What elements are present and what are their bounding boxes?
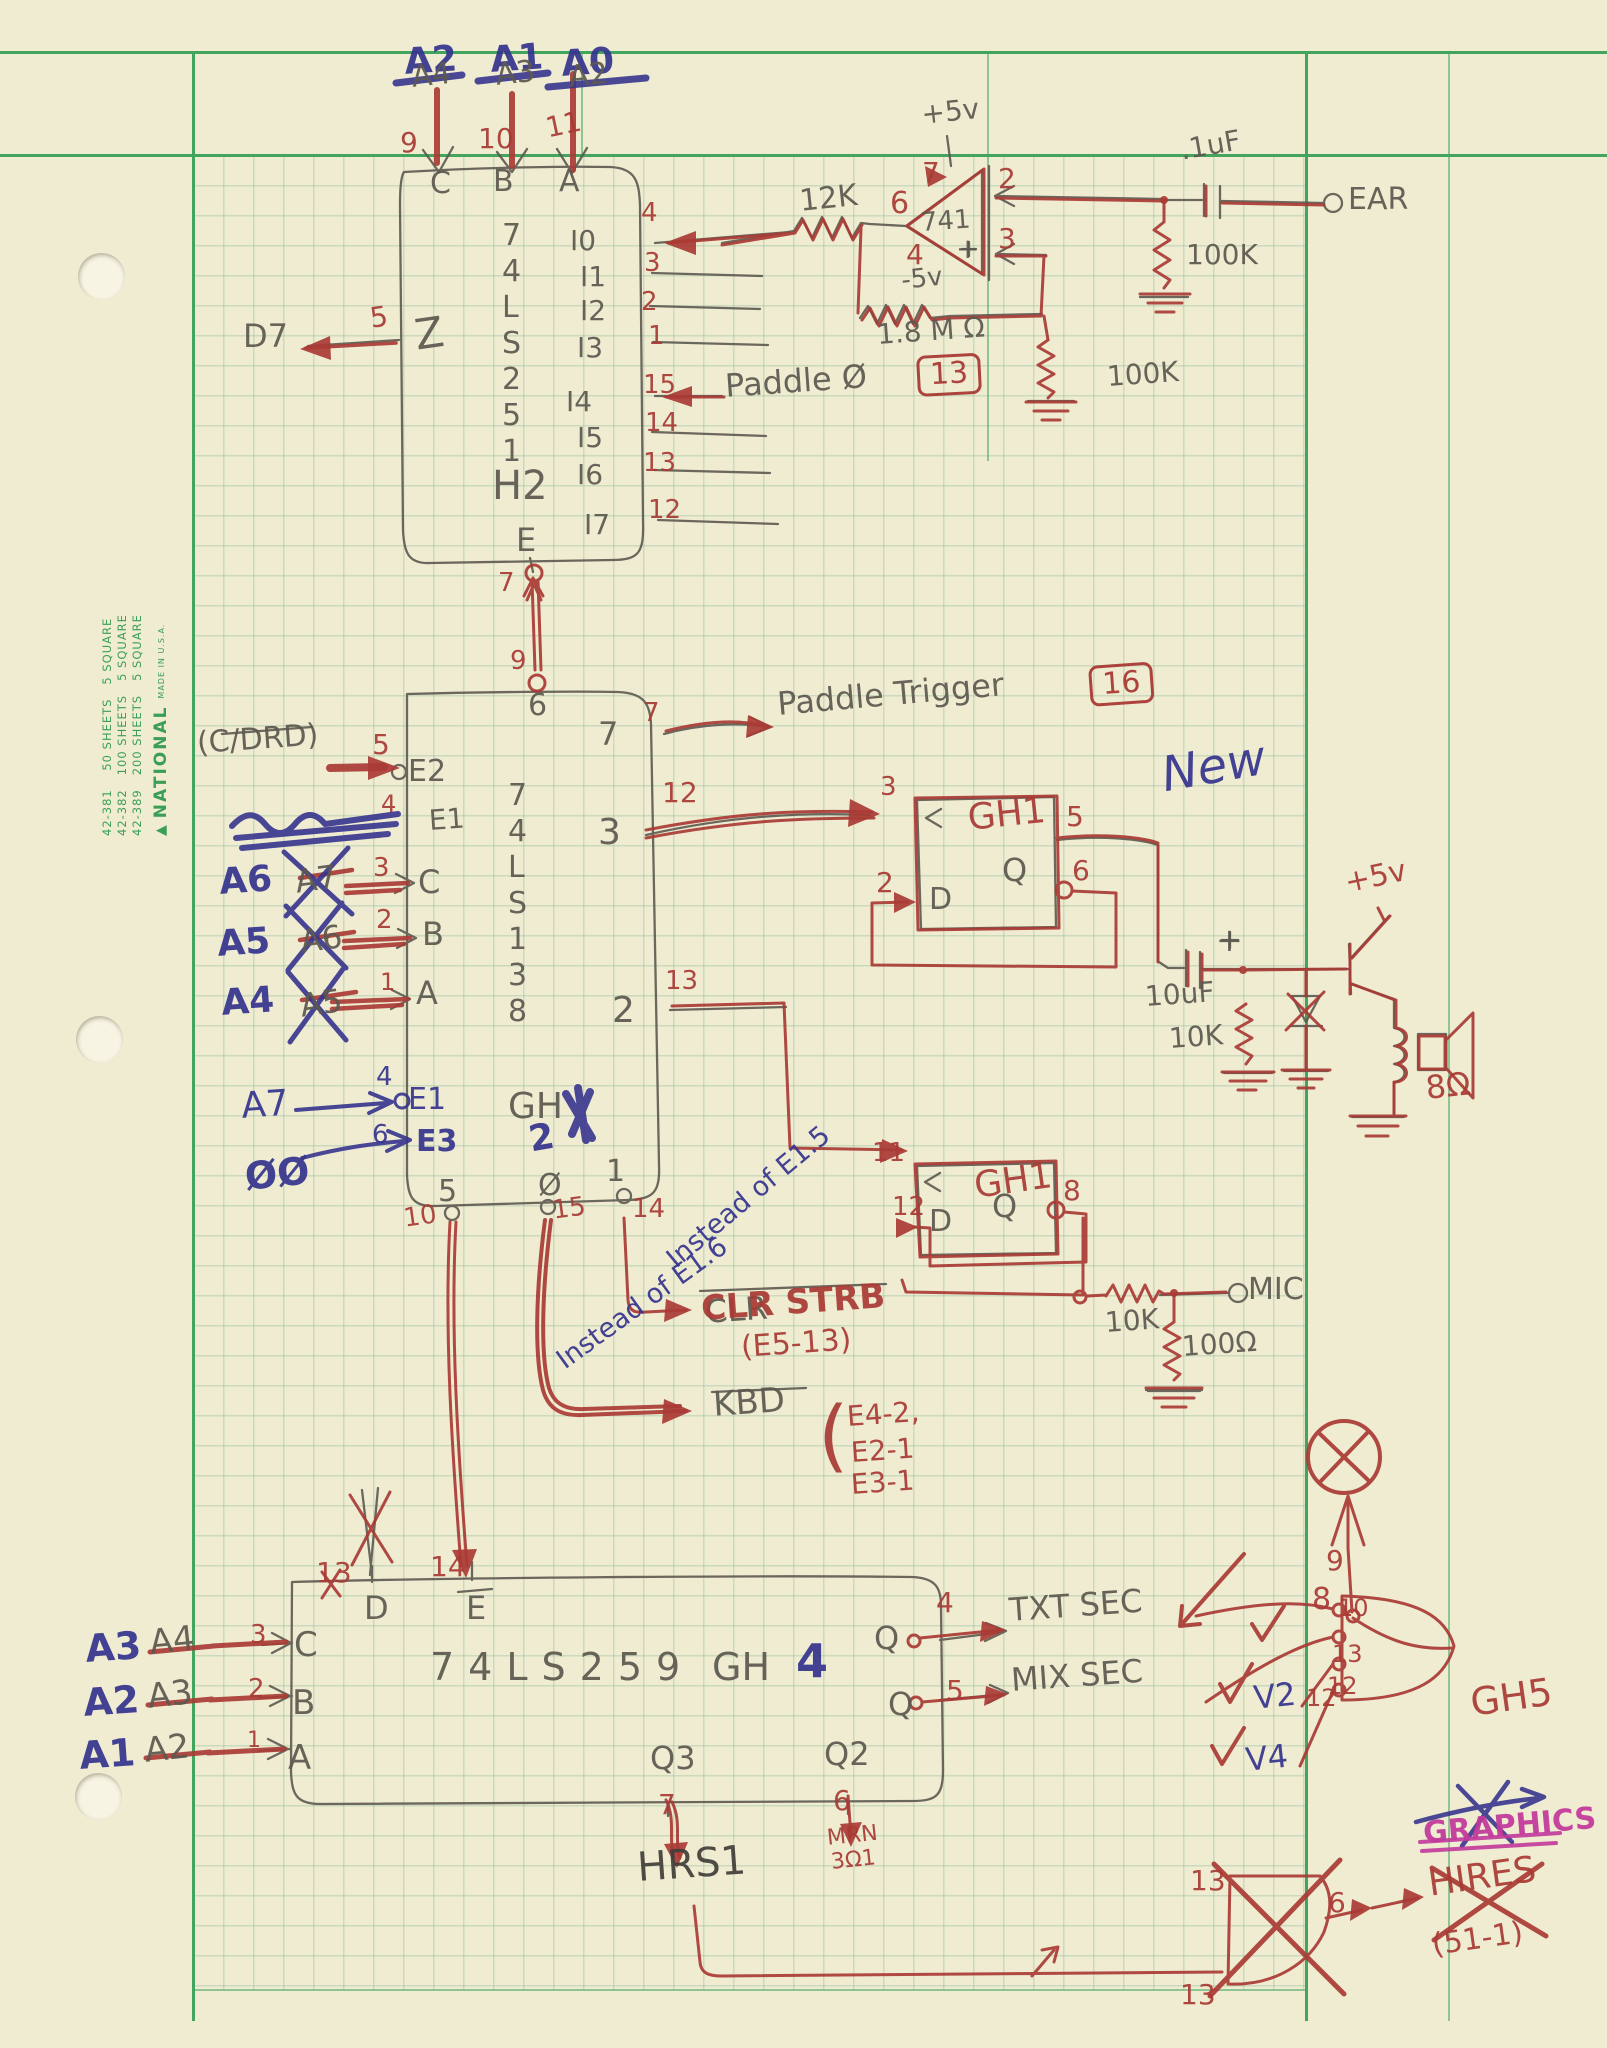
chip3-a-pin1: 1 [247,1730,261,1753]
cap-10uf: 10uF [1144,977,1215,1011]
chip3-q1-pin5: 5 [946,1676,964,1705]
opamp-pin2: 2 [998,164,1016,193]
chip3-q0-pin4: 4 [936,1588,954,1617]
chip1-i6: I6 [577,460,603,489]
res-12k: 12K [798,180,859,217]
chip2-pin6: 6 [528,690,547,721]
gh5-pin13: 13 [1332,1642,1363,1667]
opamp-plus: + [956,234,979,263]
net-hrs1: HRS1 [636,1840,747,1889]
chip2-out2: 2 [612,992,635,1029]
gh5-ref: GH5 [1468,1673,1555,1724]
chip1-z-pin5: 5 [368,302,390,333]
chip2-e2-pin5: 5 [372,730,390,759]
chip3-q0: Q [874,1622,899,1655]
chip3-c-pin3: 3 [250,1622,267,1649]
spk-8ohm: 8Ω [1424,1067,1472,1105]
ref-box-13: 13 [916,353,982,397]
chip3-e: E [466,1592,486,1625]
chip2-out7: 7 [598,718,618,751]
latch2-d: D [929,1206,952,1237]
latch1-q-pin5: 5 [1066,802,1084,831]
net-iord: (C/DRD) [196,720,319,760]
addr-a6: A6 [218,860,273,901]
res-100k-a: 100K [1186,240,1258,269]
addr-a7: A7 [240,1085,290,1126]
chip1-ref-h2: H2 [492,466,548,508]
note-new: New [1158,734,1270,801]
chip3-name: 74LS259 [430,1648,694,1688]
net-graphics: GRAPHICS [1422,1803,1597,1849]
chip3-q3-pin7: 7 [658,1790,676,1819]
res-100ohm: 100Ω [1181,1327,1258,1361]
handwritten-labels: A2A4A1A3A0A291011CBA7 4 L S 2 5 1I0I1I2I… [0,0,1607,2048]
chip1-pin-b: B [493,166,514,197]
latch2-clk-pin11: 11 [872,1140,905,1167]
pin-9: 9 [400,128,418,157]
chip1-pin-c: C [430,168,451,199]
chip2-e2: E2 [408,756,446,787]
xgate-pin13b: 13 [1180,1980,1216,2009]
addr-a2-old: A4 [410,58,453,93]
pin-3: 3 [644,250,661,277]
addr-a3-old2: A3 [146,1675,194,1715]
res-1p8m: 1.8 M Ω [876,312,986,349]
cap-10uf-plus: + [1216,924,1243,957]
net-v2: V2 [1252,1678,1297,1715]
net-e4-2: E4-2, [846,1397,920,1431]
opamp-minus5v: -5v [900,264,944,295]
chip2-c-pin3: 3 [373,855,390,882]
chip1-e: E [516,524,536,557]
graph-paper-sheet: 42-381 50 SHEETS 5 SQUARE 42-382 100 SHE… [0,0,1607,2048]
pin-15: 15 [643,372,676,399]
addr-a3: A3 [84,1626,142,1669]
net-v4: V4 [1244,1740,1289,1777]
chip1-i1: I1 [580,262,606,291]
addr-a5: A5 [216,922,271,963]
chip3-d: D [364,1592,389,1625]
kbd-paren: ( [818,1396,848,1477]
pin-1: 1 [648,323,665,350]
res-100k-b: 100K [1106,357,1180,391]
opamp-pin6: 6 [890,188,909,219]
chip3-e-pin14: 14 [430,1552,466,1581]
chip1-pin-a: A [559,166,580,197]
chip3-a: A [288,1741,311,1776]
chip2-out1: 1 [606,1156,625,1187]
net-paddle0: Paddle Ø [724,360,868,403]
chip2-e1-pin4-crossed: 4 [381,792,396,817]
latch2-d-pin12: 12 [892,1194,925,1221]
chip2-out2-pin13: 13 [665,968,698,995]
chip2-a: A [416,977,438,1010]
chip1-i7: I7 [584,510,610,539]
chip3-q3: Q3 [650,1742,696,1775]
net-mic: MIC [1248,1274,1304,1305]
chip3-q2: Q2 [824,1738,870,1771]
chip2-name: 7 4 L S 1 3 8 [508,778,527,1030]
opamp-pin3: 3 [998,224,1016,253]
net-paddle-trigger: Paddle Trigger [776,668,1005,721]
xgate-pin13a: 13 [1190,1866,1226,1895]
gh5-pin9: 9 [1326,1546,1344,1575]
chip3-b: B [292,1686,315,1721]
latch2-qbar-pin8: 8 [1063,1176,1081,1205]
addr-a6-old: A6 [298,920,344,959]
chip2-a-pin1: 1 [380,970,395,995]
chip3-c: C [294,1628,318,1663]
net-51-1: (51-1) [1430,1917,1525,1961]
res-10k-spk: 10K [1168,1020,1224,1053]
chip2-out0-pin15: 15 [551,1193,588,1224]
pin-10: 10 [478,124,514,153]
addr-a2b: A2 [82,1680,140,1723]
chip2-out3: 3 [598,814,621,851]
chip2-out5: 5 [438,1176,457,1207]
addr-a7-old: A7 [293,860,339,899]
gh5-pin8: 8 [1312,1584,1331,1615]
chip1-i3: I3 [577,333,603,362]
pin-11: 11 [543,107,584,143]
pin-2: 2 [641,289,658,316]
chip3-ref-4: 4 [796,1638,828,1686]
chip3-b-pin2: 2 [248,1676,265,1703]
latch2-q: Q [992,1190,1017,1223]
chip2-out3-pin12: 12 [662,778,698,807]
pin-4: 4 [641,200,658,227]
net-d7: D7 [243,320,288,353]
addr-a4-old2: A4 [148,1621,196,1661]
chip1-i2: I2 [580,296,606,325]
net-phi0: ØØ [243,1151,311,1197]
pin-13: 13 [643,450,676,477]
net-kbd: KBD [712,1383,786,1423]
latch1-clk-pin3: 3 [880,774,897,801]
chip2-e3-pin6: 6 [372,1122,389,1149]
chip3-d-pin13: 13 [316,1558,352,1587]
net-v2-pin12: 12 [1306,1686,1337,1711]
opamp-pin7: 7 [922,158,940,187]
net-mrn2: 3Ω1 [830,1847,877,1874]
chip1-name: 7 4 L S 2 5 1 [502,218,521,470]
cap-p1uf: .1uF [1178,125,1243,164]
addr-a1-old: A3 [494,56,537,91]
chip1-i0: I0 [570,226,596,255]
chip3-q1: Q [888,1688,913,1721]
ref-box-16: 16 [1088,662,1155,708]
net-hires: HIRES [1426,1851,1538,1903]
latch1-d-pin2: 2 [876,868,894,897]
net-ear: EAR [1348,184,1408,215]
pin-14: 14 [645,410,678,437]
opamp-plus5v: +5v [920,94,981,129]
chip1-z: Z [412,310,447,357]
chip1-i5: I5 [577,423,603,452]
res-10k-mic: 10K [1104,1304,1160,1337]
addr-a0-old: A2 [567,58,610,93]
chip2-b: B [422,918,444,951]
chip2-b-pin2: 2 [376,907,393,934]
latch1-qbar-pin6: 6 [1072,856,1090,885]
addr-a4: A4 [220,981,275,1022]
latch1-ref-gh1: GH1 [966,792,1047,837]
chip2-e1: E1 [408,1084,446,1115]
addr-a1b: A1 [78,1733,136,1776]
chip2-out5-pin10: 10 [402,1201,439,1232]
latch1-q: Q [1002,854,1027,887]
addr-a2-old2: A2 [143,1729,191,1769]
pin-12: 12 [648,497,681,524]
net-e2-1: E2-1 [850,1434,915,1467]
addr-a5-old: A5 [298,984,344,1023]
chip1-i4: I4 [566,387,592,416]
chip1-e-pin7: 7 [498,570,515,597]
latch1-d: D [929,884,952,915]
chip2-out7-pin7: 7 [643,700,660,727]
net-e5-13: (E5-13) [740,1324,852,1363]
chip3-q2-pin6: 6 [833,1786,851,1815]
chip2-c: C [418,866,440,899]
chip2-en-pin9: 9 [510,648,527,675]
net-e3-1: E3-1 [850,1466,915,1499]
chip2-e3: E3 [416,1126,457,1157]
spk-plus5v: +5v [1342,855,1409,898]
net-mix-sec: MIX SEC [1010,1655,1144,1697]
gh5-pin10: 10 [1338,1596,1369,1621]
xgate-pin6: 6 [1328,1888,1346,1917]
chip3-ref-gh: GH [712,1648,770,1688]
chip2-e1-pin4: 4 [376,1064,393,1091]
chip2-out1-pin14: 14 [632,1196,665,1223]
net-clr-strb: CLR STRB [700,1279,886,1327]
chip2-e1-crossed: E1 [428,804,465,836]
net-txt-sec: TXT SEC [1008,1585,1143,1627]
